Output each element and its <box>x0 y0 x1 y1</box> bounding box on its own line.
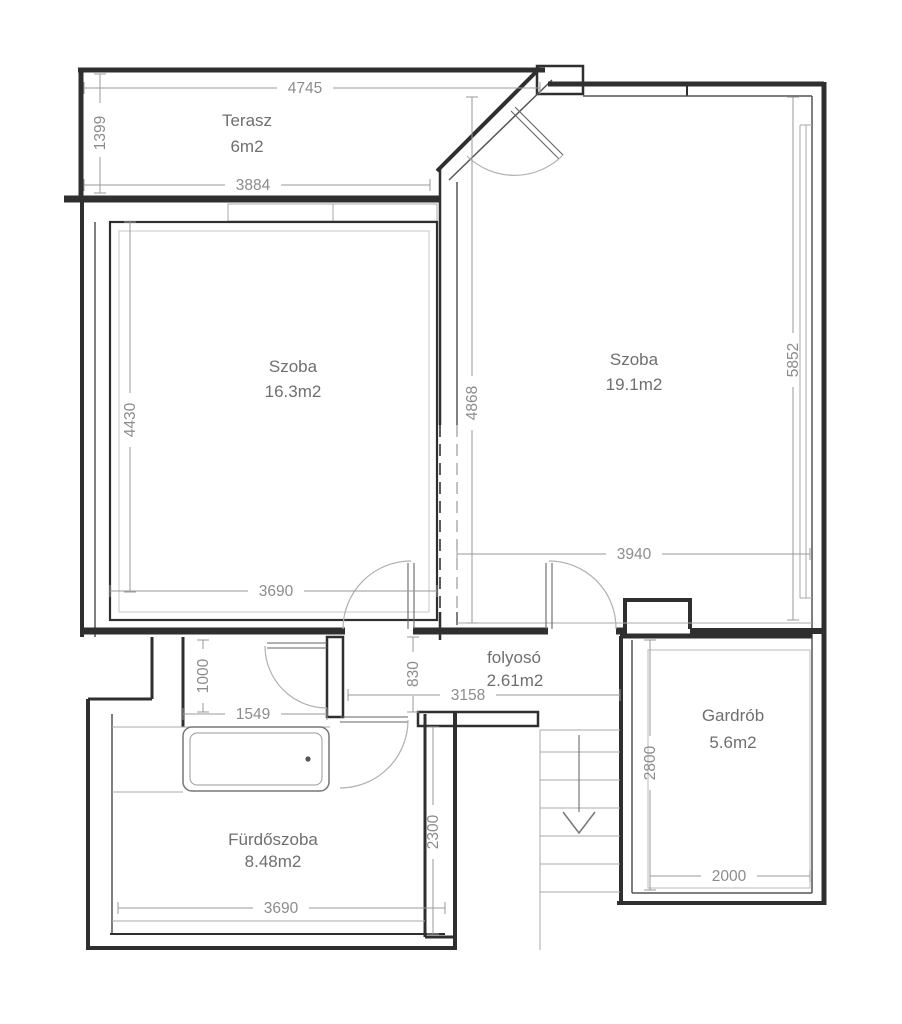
entrance-door <box>467 107 563 175</box>
room-area-szoba-right: 19.1m2 <box>606 375 663 394</box>
dim-bathroom-width: 3690 <box>264 900 299 917</box>
dim-wardrobe-width: 2000 <box>712 868 747 885</box>
floor-plan-page: 4745 1399 3884 4430 3690 4868 5852 3940 … <box>0 0 902 1024</box>
stair-edge <box>540 730 620 950</box>
diagonal-entry-wall-outer <box>437 68 540 171</box>
stair-down-arrow-icon <box>563 812 595 833</box>
dim-wardrobe-depth: 2800 <box>642 745 659 780</box>
dim-terrace-width: 4745 <box>288 80 322 97</box>
dim-niche-depth: 1000 <box>195 658 212 693</box>
dim-room-left-width: 3690 <box>259 583 294 600</box>
diagonal-entry-wall-inner <box>449 80 552 180</box>
room-area-gardrob: 5.6m2 <box>709 733 756 752</box>
bathtub <box>183 727 329 791</box>
dim-bathroom-depth: 2300 <box>425 814 442 849</box>
dim-room-left-depth: 4430 <box>122 402 139 437</box>
room-label-folyoso: folyosó <box>487 648 541 667</box>
room-label-terasz: Terasz <box>222 111 272 130</box>
corridor-bottom-wall <box>418 712 538 726</box>
room-left-outline <box>110 222 437 620</box>
bathtub-drain <box>305 756 310 761</box>
window-right <box>333 204 437 221</box>
room-area-folyoso: 2.61m2 <box>487 671 544 690</box>
wardrobe-finish-line <box>648 650 810 888</box>
dim-terrace-window: 3884 <box>236 177 271 194</box>
staircase <box>540 730 620 950</box>
window-left <box>228 204 333 221</box>
walls <box>64 66 826 950</box>
corridor-pier <box>327 637 343 717</box>
dim-corridor-width: 3158 <box>451 687 485 704</box>
room-area-terasz: 6m2 <box>230 137 263 156</box>
floor-plan-drawing: 4745 1399 3884 4430 3690 4868 5852 3940 … <box>0 0 902 1024</box>
dimension-lines <box>84 74 810 934</box>
door-room-left <box>343 561 414 629</box>
room-left-finish-line <box>119 231 429 612</box>
room-area-furdoszoba: 8.48m2 <box>245 852 302 871</box>
dim-room-right-depth: 5852 <box>785 343 802 377</box>
room-label-szoba-left: Szoba <box>269 357 318 376</box>
dim-terrace-depth: 1399 <box>92 116 109 150</box>
room-label-szoba-right: Szoba <box>610 350 659 369</box>
dim-partition: 4868 <box>464 386 481 420</box>
chimney-notch <box>625 600 690 631</box>
room-area-szoba-left: 16.3m2 <box>265 382 322 401</box>
dim-niche-width: 1549 <box>236 706 270 723</box>
room-label-gardrob: Gardrób <box>702 706 764 725</box>
room-label-furdoszoba: Fürdőszoba <box>228 830 318 849</box>
dim-corridor-depth: 830 <box>405 661 422 687</box>
dim-room-right-width: 3940 <box>617 546 652 563</box>
door-room-right <box>546 561 616 629</box>
stair-treads <box>540 752 620 892</box>
door-niche <box>265 643 327 708</box>
door-bathroom <box>340 717 408 788</box>
